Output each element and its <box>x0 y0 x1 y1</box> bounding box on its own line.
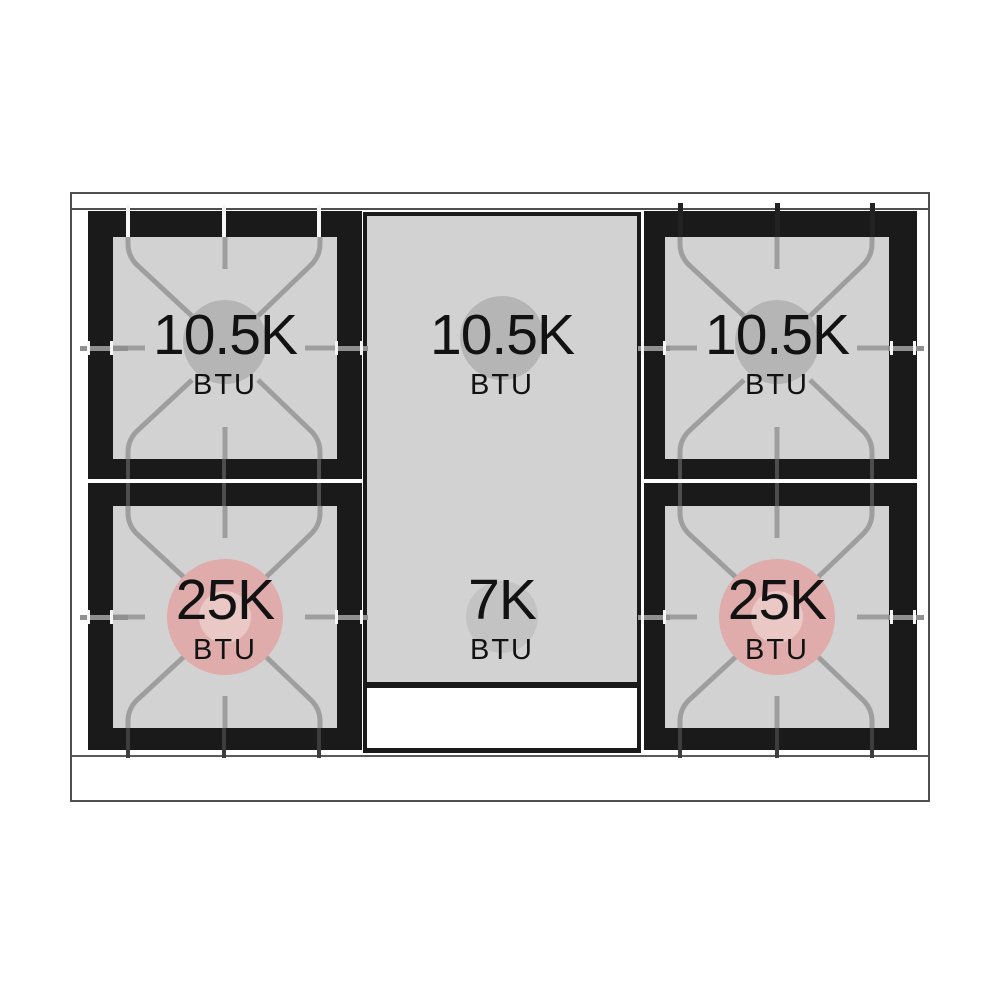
grate-tick <box>641 341 644 355</box>
grate-bar <box>870 728 874 758</box>
btu-unit: BTU <box>113 371 337 400</box>
center-griddle-panel: 10.5K BTU 7K BTU <box>363 212 641 753</box>
grate-tick <box>87 341 90 355</box>
burner-bottom-left: 25K BTU <box>113 506 337 728</box>
back-trim-line <box>72 208 928 210</box>
grate-bar <box>222 728 226 758</box>
btu-value: 25K <box>113 572 337 629</box>
grate-bar <box>870 203 875 237</box>
btu-value: 25K <box>665 572 889 629</box>
burner-rating: 10.5K BTU <box>113 307 337 400</box>
cooktop-diagram: 10.5K BTU 2 <box>0 0 1000 1000</box>
grate-tick <box>360 610 363 624</box>
burner-rating: 7K BTU <box>367 572 637 665</box>
grate-tick <box>110 610 113 624</box>
btu-unit: BTU <box>367 636 637 665</box>
range-outline: 10.5K BTU 2 <box>70 192 930 802</box>
btu-unit: BTU <box>367 371 637 400</box>
grate-divider-line <box>644 479 925 483</box>
grate-bar <box>775 203 780 237</box>
burner-bottom-right: 25K BTU <box>665 506 889 728</box>
btu-unit: BTU <box>665 371 889 400</box>
grate-bar <box>222 205 226 237</box>
btu-value: 10.5K <box>113 307 337 364</box>
grate-tick <box>663 341 666 355</box>
grate-bar <box>775 728 779 758</box>
grate-tick <box>913 341 916 355</box>
griddle-surface: 10.5K BTU 7K BTU <box>367 216 637 682</box>
burner-rating: 25K BTU <box>113 572 337 665</box>
grate-finger <box>888 346 924 351</box>
grate-bar <box>317 205 321 237</box>
grate-tick <box>87 610 90 624</box>
grate-tick <box>335 610 338 624</box>
grate-bar <box>678 203 683 237</box>
btu-value: 10.5K <box>367 307 637 364</box>
grate-tick <box>335 341 338 355</box>
grate-finger <box>336 615 368 620</box>
grate-tick <box>641 610 644 624</box>
front-edge-line <box>72 755 928 757</box>
burner-rating: 10.5K BTU <box>367 307 637 400</box>
burner-rating: 25K BTU <box>665 572 889 665</box>
grate-divider-line <box>74 479 362 483</box>
burner-rating: 10.5K BTU <box>665 307 889 400</box>
grate-tick <box>360 341 363 355</box>
grate-bar <box>678 728 682 758</box>
grate-bar <box>317 728 321 758</box>
grate-tick <box>110 341 113 355</box>
grate-bar <box>126 728 130 758</box>
grate-tick <box>890 341 893 355</box>
grate-tick <box>663 610 666 624</box>
btu-unit: BTU <box>665 636 889 665</box>
burner-top-left: 10.5K BTU <box>113 237 337 459</box>
btu-value: 10.5K <box>665 307 889 364</box>
grate-bar <box>126 205 130 237</box>
btu-value: 7K <box>367 572 637 629</box>
btu-unit: BTU <box>113 636 337 665</box>
burner-top-right: 10.5K BTU <box>665 237 889 459</box>
grate-tick <box>913 610 916 624</box>
grate-tick <box>890 610 893 624</box>
grate-finger <box>336 346 368 351</box>
grate-finger <box>888 615 924 620</box>
griddle-front-panel <box>367 688 637 748</box>
